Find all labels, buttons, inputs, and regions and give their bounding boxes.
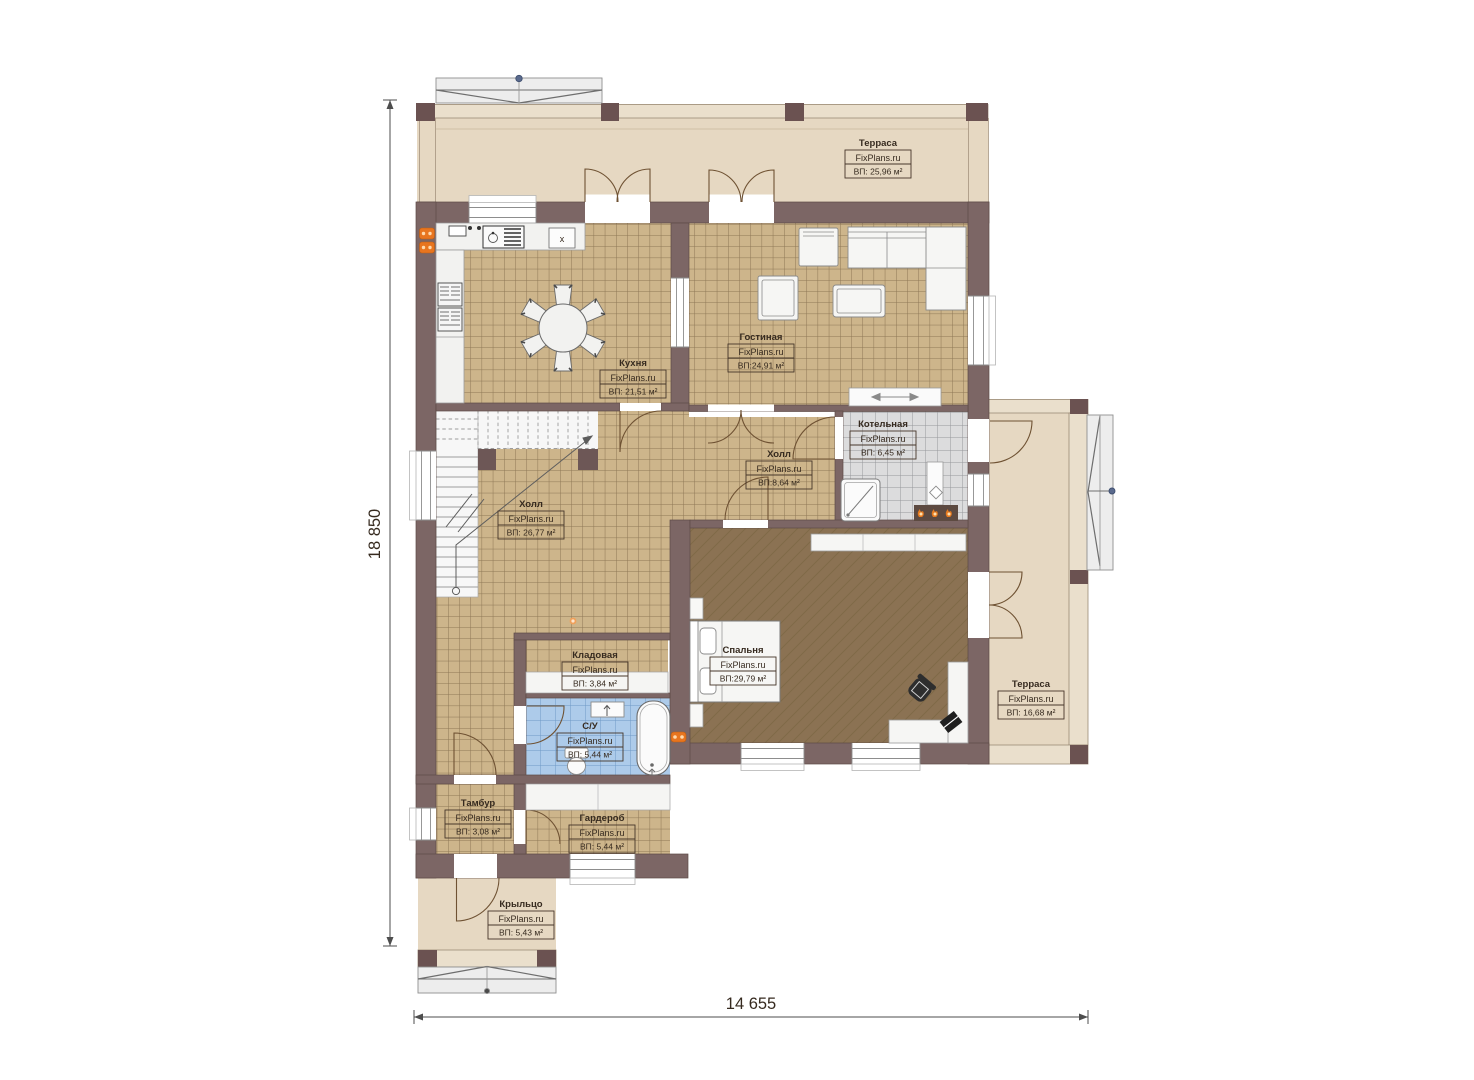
svg-text:ВП: 3,84 м²: ВП: 3,84 м²: [573, 679, 617, 689]
svg-text:FixPlans.ru: FixPlans.ru: [720, 660, 765, 670]
svg-text:Тамбур: Тамбур: [461, 798, 496, 809]
svg-text:ВП: 5,43 м²: ВП: 5,43 м²: [499, 928, 543, 938]
svg-text:ВП: 21,51 м²: ВП: 21,51 м²: [609, 387, 658, 397]
svg-text:ВП: 3,08 м²: ВП: 3,08 м²: [456, 827, 500, 837]
svg-text:FixPlans.ru: FixPlans.ru: [1008, 694, 1053, 704]
svg-text:Холл: Холл: [519, 499, 543, 510]
svg-text:x: x: [560, 234, 565, 244]
svg-text:FixPlans.ru: FixPlans.ru: [855, 153, 900, 163]
svg-text:Холл: Холл: [767, 449, 791, 460]
svg-text:Крыльцо: Крыльцо: [499, 899, 542, 910]
svg-text:FixPlans.ru: FixPlans.ru: [455, 813, 500, 823]
svg-text:FixPlans.ru: FixPlans.ru: [756, 464, 801, 474]
svg-text:Кухня: Кухня: [619, 358, 647, 369]
svg-text:FixPlans.ru: FixPlans.ru: [498, 914, 543, 924]
svg-text:Спальня: Спальня: [722, 645, 763, 656]
svg-text:ВП: 5,44 м²: ВП: 5,44 м²: [568, 750, 612, 760]
svg-text:FixPlans.ru: FixPlans.ru: [738, 347, 783, 357]
svg-text:Терраса: Терраса: [859, 138, 898, 149]
svg-text:ВП: 25,96 м²: ВП: 25,96 м²: [854, 167, 903, 177]
svg-text:18 850: 18 850: [366, 509, 384, 559]
svg-text:ВП: 26,77 м²: ВП: 26,77 м²: [507, 528, 556, 538]
svg-text:Терраса: Терраса: [1012, 679, 1051, 690]
svg-text:FixPlans.ru: FixPlans.ru: [508, 514, 553, 524]
svg-text:ВП: 5,44 м²: ВП: 5,44 м²: [580, 842, 624, 852]
svg-text:FixPlans.ru: FixPlans.ru: [572, 665, 617, 675]
svg-text:С/У: С/У: [582, 721, 598, 732]
svg-text:Гардероб: Гардероб: [580, 813, 625, 824]
svg-text:Котельная: Котельная: [858, 419, 908, 430]
svg-text:Кладовая: Кладовая: [572, 650, 618, 661]
svg-text:Гостиная: Гостиная: [740, 332, 783, 343]
svg-text:ВП: 16,68 м²: ВП: 16,68 м²: [1007, 708, 1056, 718]
svg-text:ВП:24,91 м²: ВП:24,91 м²: [738, 361, 785, 371]
svg-text:FixPlans.ru: FixPlans.ru: [567, 736, 612, 746]
svg-text:FixPlans.ru: FixPlans.ru: [579, 828, 624, 838]
svg-text:FixPlans.ru: FixPlans.ru: [860, 434, 905, 444]
svg-text:ВП:29,79 м²: ВП:29,79 м²: [720, 674, 767, 684]
svg-text:FixPlans.ru: FixPlans.ru: [610, 373, 655, 383]
svg-text:ВП:8,64 м²: ВП:8,64 м²: [758, 478, 800, 488]
svg-text:14 655: 14 655: [726, 995, 776, 1013]
svg-text:ВП: 6,45 м²: ВП: 6,45 м²: [861, 448, 905, 458]
